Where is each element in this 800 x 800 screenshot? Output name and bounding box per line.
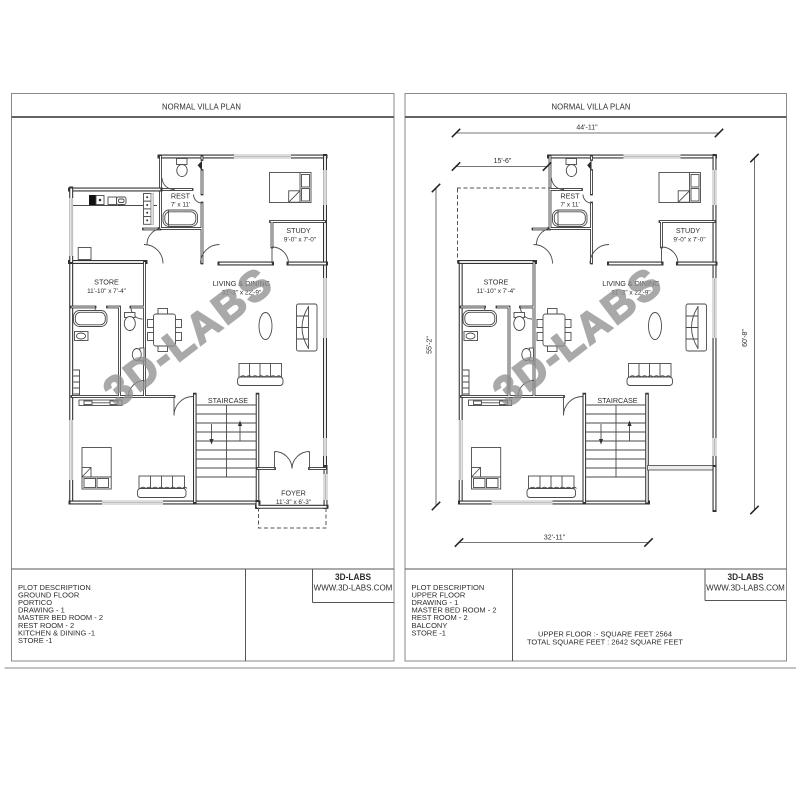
svg-text:NORMAL VILLA PLAN: NORMAL VILLA PLAN <box>162 102 241 112</box>
svg-text:WWW.3D-LABS.COM: WWW.3D-LABS.COM <box>314 584 393 593</box>
svg-text:60'-8": 60'-8" <box>742 329 749 347</box>
svg-text:11'-3" x 6'-3": 11'-3" x 6'-3" <box>276 499 311 506</box>
svg-text:3D-LABS: 3D-LABS <box>335 572 371 582</box>
svg-text:3D-LABS: 3D-LABS <box>728 572 764 582</box>
svg-text:32'-11": 32'-11" <box>544 535 566 542</box>
svg-text:3D-LABS: 3D-LABS <box>95 257 282 415</box>
svg-text:44'-11": 44'-11" <box>576 125 598 132</box>
svg-text:TOTAL SQUARE FEET : 2642 SQUAR: TOTAL SQUARE FEET : 2642 SQUARE FEET <box>527 638 683 647</box>
svg-text:FOYER: FOYER <box>281 489 306 498</box>
svg-text:55'-2": 55'-2" <box>427 336 434 354</box>
svg-text:STORE -1: STORE -1 <box>412 628 446 637</box>
svg-text:15'-6": 15'-6" <box>494 158 512 165</box>
svg-text:3D-LABS: 3D-LABS <box>484 257 671 415</box>
svg-text:STORE -1: STORE -1 <box>18 636 52 645</box>
svg-text:NORMAL VILLA PLAN: NORMAL VILLA PLAN <box>552 102 631 112</box>
svg-text:WWW.3D-LABS.COM: WWW.3D-LABS.COM <box>706 584 785 593</box>
